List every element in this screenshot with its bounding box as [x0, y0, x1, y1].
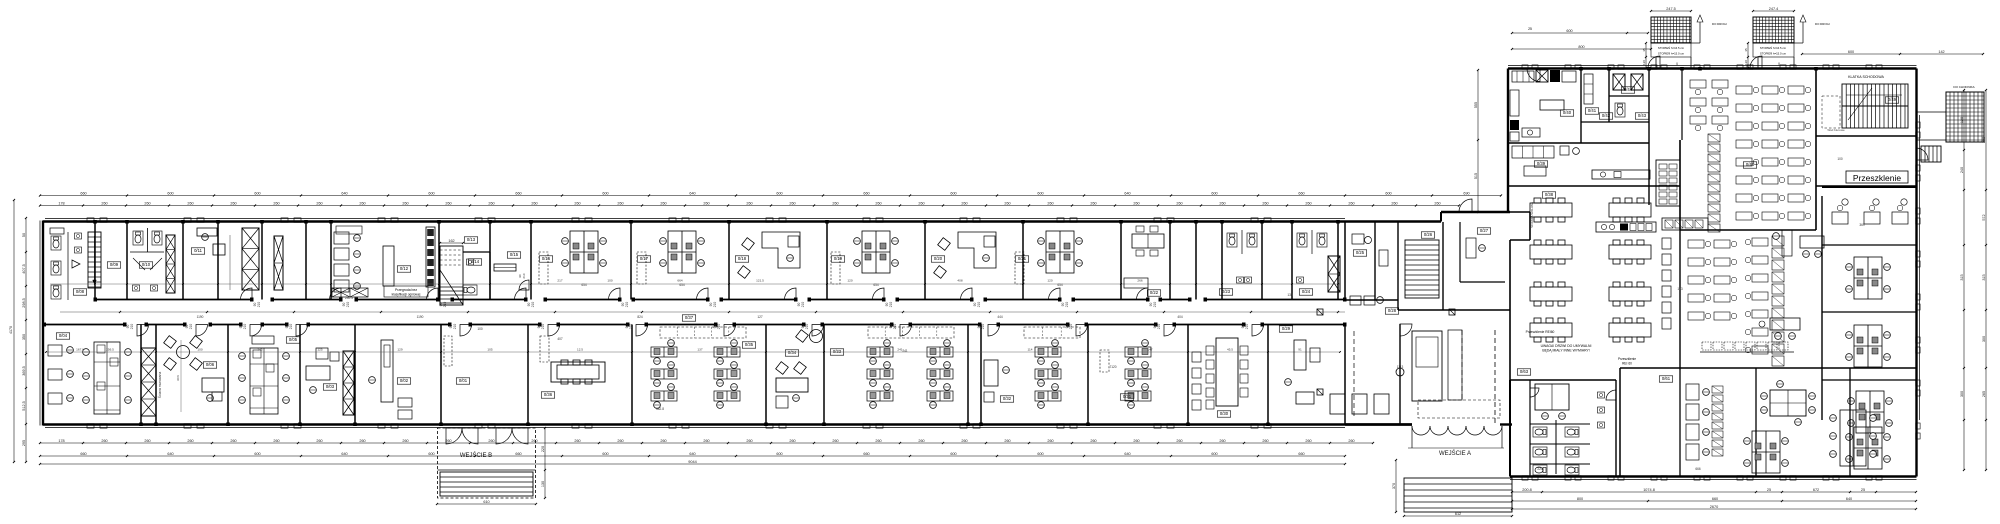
svg-text:147: 147: [1147, 348, 1152, 352]
svg-text:260: 260: [789, 439, 795, 443]
svg-text:0/05: 0/05: [289, 337, 298, 342]
svg-text:35: 35: [1744, 48, 1748, 52]
svg-text:260: 260: [230, 439, 236, 443]
svg-text:0/16: 0/16: [542, 256, 551, 261]
svg-text:600: 600: [1037, 452, 1043, 456]
svg-text:265: 265: [1982, 391, 1986, 397]
svg-text:210: 210: [189, 324, 193, 330]
svg-text:260: 260: [703, 201, 709, 205]
svg-text:4170: 4170: [9, 326, 13, 334]
svg-text:640: 640: [689, 191, 695, 195]
svg-text:260: 260: [832, 201, 838, 205]
svg-text:240: 240: [1960, 167, 1964, 173]
svg-text:260: 260: [1047, 201, 1053, 205]
svg-text:REI 60: REI 60: [1622, 362, 1632, 366]
svg-text:210: 210: [289, 324, 293, 330]
svg-text:137: 137: [697, 348, 702, 352]
svg-text:45.5: 45.5: [1227, 348, 1233, 352]
svg-text:210: 210: [1245, 324, 1249, 330]
svg-text:0/08: 0/08: [76, 289, 85, 294]
svg-text:Ściana murowana: Ściana murowana: [157, 372, 162, 399]
svg-text:0/41: 0/41: [1588, 108, 1597, 113]
svg-text:247.4: 247.4: [1769, 7, 1779, 11]
svg-text:240.5: 240.5: [345, 296, 353, 300]
svg-text:0/61: 0/61: [1662, 376, 1671, 381]
svg-text:350: 350: [22, 334, 26, 340]
svg-text:0/02: 0/02: [400, 378, 409, 383]
svg-text:UWAGA! DRZWI DO UMYWALNI: UWAGA! DRZWI DO UMYWALNI: [1541, 344, 1592, 348]
svg-text:0/44: 0/44: [1624, 87, 1633, 92]
svg-text:162: 162: [448, 239, 454, 243]
svg-text:210: 210: [625, 302, 629, 308]
svg-text:0/01: 0/01: [459, 378, 468, 383]
svg-text:600: 600: [428, 191, 434, 195]
svg-text:315: 315: [1982, 274, 1986, 280]
svg-text:0/20: 0/20: [934, 256, 943, 261]
svg-text:114: 114: [1028, 348, 1033, 352]
svg-text:295: 295: [22, 440, 26, 446]
svg-text:640: 640: [341, 191, 347, 195]
svg-text:35: 35: [1642, 48, 1646, 52]
svg-text:266: 266: [1137, 279, 1142, 283]
svg-text:260: 260: [1090, 439, 1096, 443]
svg-text:260: 260: [1348, 439, 1354, 443]
svg-text:STOPIEŃ h=16.5 cm: STOPIEŃ h=16.5 cm: [1760, 46, 1787, 50]
svg-text:640: 640: [689, 452, 695, 456]
svg-text:640: 640: [167, 452, 173, 456]
svg-text:600: 600: [1385, 191, 1391, 195]
svg-text:260: 260: [574, 439, 580, 443]
svg-text:7120: 7120: [1109, 365, 1116, 369]
svg-text:210: 210: [522, 273, 526, 278]
svg-text:0/35: 0/35: [745, 342, 754, 347]
svg-text:167.6: 167.6: [76, 348, 84, 352]
svg-text:0/13: 0/13: [467, 237, 476, 242]
svg-text:STOPIEŃ h=15.0 cm: STOPIEŃ h=15.0 cm: [1658, 52, 1685, 56]
svg-text:260: 260: [359, 439, 365, 443]
svg-text:0/49: 0/49: [1888, 97, 1897, 102]
svg-text:KLATKA SCHODOWA: KLATKA SCHODOWA: [1848, 75, 1884, 79]
svg-text:600: 600: [776, 452, 782, 456]
svg-text:408: 408: [957, 279, 962, 283]
svg-text:654: 654: [1057, 283, 1063, 287]
svg-text:260: 260: [316, 439, 322, 443]
svg-text:9044: 9044: [688, 460, 696, 464]
svg-text:BĘDĄ MIAŁY INNE WYMIARY!: BĘDĄ MIAŁY INNE WYMIARY!: [1542, 349, 1589, 353]
svg-text:Wsd biurowe: Wsd biurowe: [1827, 128, 1845, 132]
svg-text:600: 600: [950, 191, 956, 195]
svg-text:260: 260: [1090, 201, 1096, 205]
svg-text:640: 640: [1124, 452, 1130, 456]
svg-text:260: 260: [1219, 201, 1225, 205]
svg-text:0/21: 0/21: [1018, 256, 1027, 261]
svg-text:1190: 1190: [417, 315, 424, 319]
svg-text:138: 138: [1287, 293, 1293, 297]
svg-text:260: 260: [273, 439, 279, 443]
svg-text:25: 25: [1767, 488, 1771, 492]
svg-text:260: 260: [101, 201, 107, 205]
svg-text:210: 210: [443, 302, 447, 308]
svg-text:Przegroda bez: Przegroda bez: [395, 288, 417, 292]
svg-text:260: 260: [789, 201, 795, 205]
svg-text:120: 120: [1047, 279, 1052, 283]
svg-text:660: 660: [1298, 191, 1304, 195]
svg-text:50: 50: [22, 233, 26, 237]
svg-text:515: 515: [1474, 173, 1478, 179]
svg-text:12.5: 12.5: [577, 348, 583, 352]
svg-text:260: 260: [961, 201, 967, 205]
svg-text:0/31: 0/31: [1123, 394, 1132, 399]
svg-text:0/15: 0/15: [510, 252, 519, 257]
svg-text:217: 217: [557, 279, 562, 283]
svg-text:90: 90: [1777, 62, 1781, 66]
svg-text:640: 640: [1846, 497, 1852, 501]
svg-text:654: 654: [679, 283, 685, 287]
svg-text:DO DROGI: DO DROGI: [1712, 22, 1727, 26]
svg-text:260: 260: [144, 201, 150, 205]
svg-text:260: 260: [1047, 439, 1053, 443]
svg-text:260: 260: [1219, 439, 1225, 443]
svg-text:0/17: 0/17: [640, 256, 649, 261]
svg-text:0/24: 0/24: [1302, 289, 1311, 294]
svg-text:120: 120: [1960, 117, 1964, 123]
svg-text:298.5: 298.5: [22, 298, 26, 308]
svg-text:260: 260: [1305, 439, 1311, 443]
svg-text:369.5: 369.5: [22, 366, 26, 376]
svg-text:100: 100: [477, 327, 483, 331]
svg-text:260: 260: [488, 201, 494, 205]
svg-text:260: 260: [875, 201, 881, 205]
svg-text:572: 572: [1982, 214, 1986, 220]
svg-text:0/36: 0/36: [544, 392, 553, 397]
svg-text:260: 260: [1348, 201, 1354, 205]
svg-text:Przeszklenie: Przeszklenie: [1618, 357, 1636, 361]
svg-text:600: 600: [1037, 191, 1043, 195]
svg-text:DO DROGI: DO DROGI: [1815, 22, 1830, 26]
svg-text:91: 91: [1298, 348, 1302, 352]
svg-text:210: 210: [243, 324, 247, 330]
svg-text:370: 370: [1392, 483, 1396, 489]
svg-text:210: 210: [531, 302, 535, 308]
svg-text:210: 210: [130, 324, 134, 330]
svg-text:127: 127: [757, 315, 763, 319]
svg-text:512.5: 512.5: [22, 401, 26, 411]
svg-text:260: 260: [531, 201, 537, 205]
svg-text:0/10: 0/10: [142, 262, 151, 267]
svg-text:Przeszklenie: Przeszklenie: [1853, 173, 1901, 183]
svg-text:0/46: 0/46: [1746, 162, 1755, 167]
svg-text:260: 260: [402, 201, 408, 205]
svg-text:210: 210: [1153, 302, 1157, 308]
svg-text:210: 210: [717, 324, 721, 330]
svg-text:260: 260: [531, 439, 537, 443]
svg-text:0/25: 0/25: [1356, 250, 1365, 255]
svg-text:660: 660: [80, 191, 86, 195]
svg-text:90: 90: [1675, 62, 1679, 66]
svg-text:600: 600: [1848, 50, 1854, 54]
svg-text:DO CHODNIKA: DO CHODNIKA: [1953, 85, 1974, 89]
svg-text:260: 260: [832, 439, 838, 443]
svg-text:100: 100: [197, 348, 202, 352]
svg-text:260: 260: [961, 439, 967, 443]
svg-text:210: 210: [1065, 302, 1069, 308]
svg-text:260: 260: [187, 201, 193, 205]
svg-text:120: 120: [847, 279, 852, 283]
svg-text:260: 260: [1262, 439, 1268, 443]
svg-text:178: 178: [58, 439, 64, 443]
svg-text:klasyfikacji ogniowej: klasyfikacji ogniowej: [392, 292, 421, 296]
svg-text:800: 800: [1578, 45, 1584, 49]
svg-text:600: 600: [254, 191, 260, 195]
svg-text:666: 666: [1695, 467, 1701, 471]
svg-text:STOPIEŃ h=15.0 cm: STOPIEŃ h=15.0 cm: [1760, 52, 1787, 56]
svg-text:690: 690: [1463, 191, 1469, 195]
svg-text:142: 142: [1938, 50, 1944, 54]
svg-text:260: 260: [746, 201, 752, 205]
svg-text:210: 210: [541, 324, 545, 330]
svg-text:660: 660: [863, 452, 869, 456]
svg-text:260: 260: [1004, 439, 1010, 443]
svg-text:315: 315: [1960, 274, 1964, 280]
svg-text:660: 660: [1298, 452, 1304, 456]
svg-text:0/19: 0/19: [834, 256, 843, 261]
svg-text:0/32: 0/32: [1003, 396, 1012, 401]
svg-text:404: 404: [1177, 315, 1183, 319]
svg-text:100: 100: [1837, 157, 1843, 161]
svg-text:178: 178: [58, 201, 64, 205]
svg-text:382.8: 382.8: [656, 407, 664, 411]
svg-text:0/29: 0/29: [1282, 326, 1291, 331]
svg-text:672: 672: [1813, 488, 1819, 492]
svg-text:600: 600: [254, 452, 260, 456]
svg-text:120: 120: [1744, 60, 1748, 65]
svg-text:660: 660: [80, 452, 86, 456]
svg-text:660: 660: [1712, 497, 1718, 501]
svg-text:260: 260: [359, 201, 365, 205]
svg-text:300: 300: [1982, 336, 1986, 342]
svg-text:STOPIEŃ h=16.5 cm: STOPIEŃ h=16.5 cm: [1658, 46, 1685, 50]
svg-text:600: 600: [602, 191, 608, 195]
svg-text:256.5: 256.5: [106, 348, 114, 352]
svg-text:640: 640: [341, 452, 347, 456]
svg-text:260: 260: [230, 201, 236, 205]
svg-text:0/27: 0/27: [1480, 228, 1489, 233]
svg-text:100: 100: [607, 279, 612, 283]
svg-text:210: 210: [889, 302, 893, 308]
svg-text:260: 260: [273, 201, 279, 205]
svg-text:2670: 2670: [1710, 505, 1718, 509]
svg-text:600: 600: [602, 452, 608, 456]
svg-text:0/11: 0/11: [194, 248, 203, 253]
svg-text:0/18: 0/18: [738, 256, 747, 261]
svg-text:0/43: 0/43: [1638, 113, 1647, 118]
svg-text:444: 444: [997, 315, 1003, 319]
svg-text:173: 173: [1677, 287, 1683, 291]
svg-text:260: 260: [144, 439, 150, 443]
svg-text:210: 210: [1069, 324, 1073, 330]
svg-text:260: 260: [617, 439, 623, 443]
svg-text:WEJŚCIE B: WEJŚCIE B: [460, 451, 492, 459]
svg-text:260: 260: [918, 439, 924, 443]
svg-text:WEJŚCIE A: WEJŚCIE A: [1439, 449, 1471, 457]
svg-text:1190: 1190: [197, 315, 204, 319]
svg-text:25: 25: [1528, 27, 1532, 31]
svg-text:0/63: 0/63: [1520, 369, 1529, 374]
svg-text:0/30: 0/30: [1220, 411, 1229, 416]
svg-text:600: 600: [428, 452, 434, 456]
svg-text:260: 260: [660, 439, 666, 443]
svg-text:260: 260: [1133, 201, 1139, 205]
svg-text:210: 210: [453, 324, 457, 330]
svg-text:600: 600: [1211, 191, 1217, 195]
svg-text:0/09: 0/09: [110, 262, 119, 267]
svg-text:210: 210: [1157, 324, 1161, 330]
svg-text:260: 260: [1176, 201, 1182, 205]
svg-text:260: 260: [746, 439, 752, 443]
svg-text:369: 369: [1859, 223, 1865, 227]
svg-text:260: 260: [1262, 201, 1268, 205]
svg-text:0/28: 0/28: [1388, 308, 1397, 313]
svg-text:260: 260: [1391, 201, 1397, 205]
svg-text:260: 260: [1305, 201, 1311, 205]
svg-text:0/03: 0/03: [326, 384, 335, 389]
svg-text:223: 223: [1537, 467, 1543, 471]
svg-text:260: 260: [445, 201, 451, 205]
svg-text:260: 260: [1176, 439, 1182, 443]
svg-text:25: 25: [1861, 488, 1865, 492]
svg-text:220: 220: [541, 446, 545, 452]
svg-text:210: 210: [977, 302, 981, 308]
svg-text:105: 105: [487, 348, 492, 352]
svg-text:247.5: 247.5: [1666, 7, 1676, 11]
svg-text:660: 660: [515, 452, 521, 456]
svg-text:260: 260: [617, 201, 623, 205]
svg-text:0/40: 0/40: [1563, 110, 1572, 115]
svg-text:800: 800: [1577, 497, 1583, 501]
svg-text:603: 603: [176, 375, 180, 380]
svg-text:260: 260: [187, 439, 193, 443]
svg-text:300: 300: [1982, 137, 1986, 143]
svg-text:600: 600: [776, 191, 782, 195]
svg-text:260: 260: [1133, 439, 1139, 443]
svg-text:407: 407: [557, 337, 563, 341]
svg-text:0/23: 0/23: [1222, 289, 1231, 294]
svg-text:260: 260: [316, 201, 322, 205]
svg-text:260: 260: [402, 439, 408, 443]
svg-text:600: 600: [167, 191, 173, 195]
svg-text:407.5: 407.5: [22, 264, 26, 274]
svg-text:612: 612: [1455, 512, 1461, 516]
svg-text:Przeszklenie REI60: Przeszklenie REI60: [1526, 330, 1555, 334]
svg-text:654: 654: [581, 283, 587, 287]
svg-text:0/33: 0/33: [833, 349, 842, 354]
svg-text:0/39: 0/39: [1537, 161, 1546, 166]
svg-text:0/12: 0/12: [400, 266, 409, 271]
svg-text:260: 260: [574, 201, 580, 205]
svg-text:260: 260: [703, 439, 709, 443]
svg-text:0/22: 0/22: [1150, 290, 1159, 295]
svg-text:130: 130: [541, 481, 545, 487]
svg-text:0/14: 0/14: [471, 259, 480, 264]
svg-text:555: 555: [1474, 102, 1478, 108]
svg-text:121.5: 121.5: [756, 279, 764, 283]
svg-text:241: 241: [902, 349, 908, 353]
svg-text:260: 260: [918, 201, 924, 205]
svg-text:610: 610: [483, 500, 489, 504]
svg-text:125: 125: [317, 348, 322, 352]
svg-text:260: 260: [660, 201, 666, 205]
svg-text:260: 260: [1434, 201, 1440, 205]
svg-text:0/34: 0/34: [788, 350, 797, 355]
svg-text:640: 640: [1124, 191, 1130, 195]
svg-text:260: 260: [1004, 201, 1010, 205]
svg-text:260: 260: [488, 439, 494, 443]
svg-text:200.8: 200.8: [1522, 488, 1532, 492]
svg-text:654: 654: [873, 283, 879, 287]
svg-text:0/42: 0/42: [1602, 113, 1611, 118]
svg-text:145: 145: [257, 348, 262, 352]
svg-text:600: 600: [1211, 452, 1217, 456]
svg-text:210: 210: [801, 302, 805, 308]
svg-text:300: 300: [1960, 391, 1964, 397]
svg-text:210: 210: [893, 324, 897, 330]
svg-text:210: 210: [346, 302, 350, 308]
svg-text:0/04: 0/04: [59, 333, 68, 338]
svg-text:210: 210: [713, 302, 717, 308]
svg-text:0/38: 0/38: [1545, 192, 1554, 197]
svg-text:664: 664: [677, 279, 682, 283]
svg-text:120: 120: [1642, 60, 1646, 65]
svg-text:129: 129: [397, 348, 402, 352]
svg-text:210: 210: [257, 302, 261, 308]
svg-text:1113: 1113: [1397, 365, 1404, 369]
svg-text:600: 600: [950, 452, 956, 456]
svg-text:660: 660: [863, 191, 869, 195]
svg-text:210: 210: [805, 324, 809, 330]
svg-text:0/37: 0/37: [685, 315, 694, 320]
svg-text:260: 260: [101, 439, 107, 443]
svg-text:0/26: 0/26: [1424, 232, 1433, 237]
svg-text:0/06: 0/06: [206, 362, 215, 367]
svg-text:600: 600: [1566, 29, 1572, 33]
svg-text:824: 824: [637, 315, 643, 319]
svg-text:660: 660: [515, 191, 521, 195]
svg-text:260: 260: [875, 439, 881, 443]
svg-text:1074.8: 1074.8: [1643, 488, 1655, 492]
